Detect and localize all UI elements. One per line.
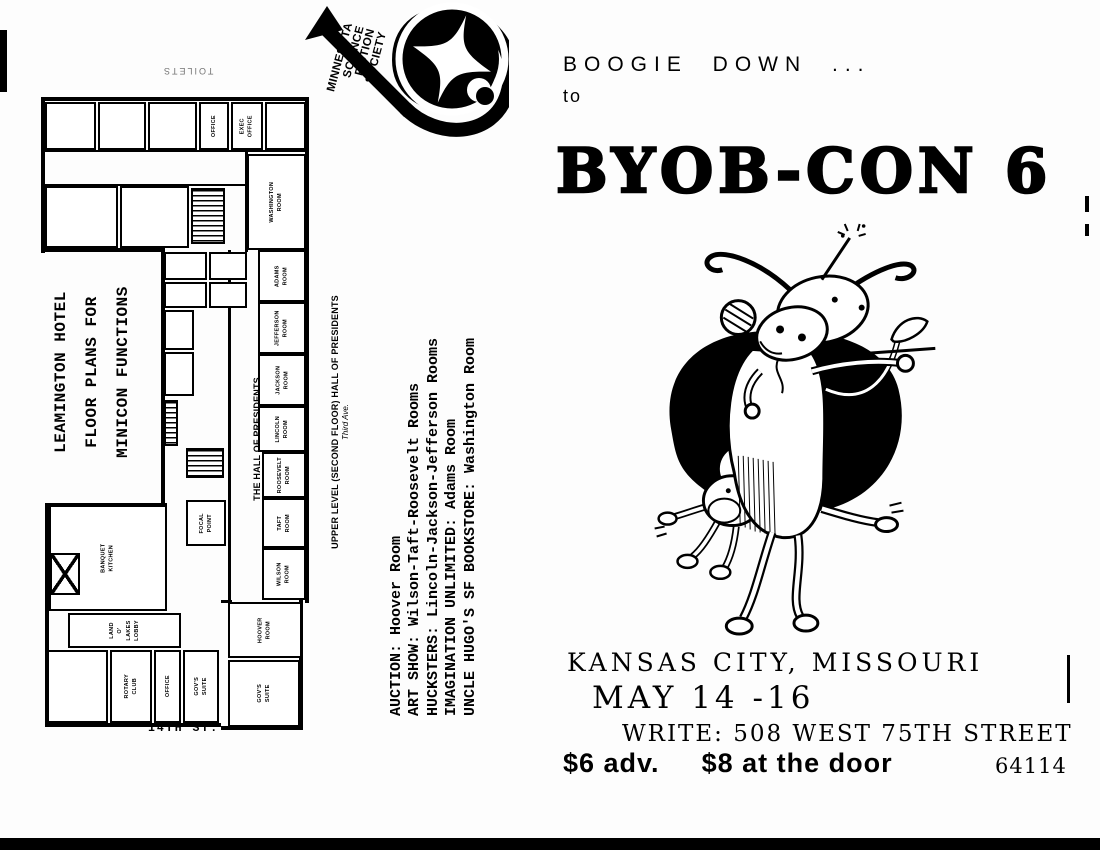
- room-office-2: OFFICE: [154, 650, 181, 723]
- flyer-page: MINNESOTA SCIENCE FICTION SOCIETY BOOGIE…: [0, 0, 1100, 850]
- room-govs-suite-west-label: GOV'S SUITE: [193, 677, 210, 696]
- room-govs-suite-east-label: GOV'S SUITE: [256, 684, 273, 703]
- room-exec-office: EXEC OFFICE: [231, 102, 263, 150]
- room-jefferson-label: JEFFERSON ROOM: [274, 310, 291, 346]
- hotel-headline-line: MINICON FUNCTIONS: [108, 282, 139, 462]
- hotel-headline-line: LEAMINGTON HOTEL: [46, 282, 77, 462]
- room-h: [164, 252, 207, 280]
- room-govs-suite-west: GOV'S SUITE: [183, 650, 219, 723]
- zip-code: 64114: [995, 754, 1067, 778]
- room-roosevelt-label: ROOSEVELT ROOM: [276, 457, 293, 493]
- room-office: OFFICE: [199, 102, 229, 150]
- room-f: [120, 186, 189, 248]
- room-e: [45, 186, 118, 248]
- elevator-2: [164, 400, 178, 446]
- room-govs-suite-east: GOV'S SUITE: [228, 660, 300, 727]
- room-rotary-club: ROTARY CLUB: [110, 650, 152, 723]
- room-m: [164, 352, 194, 396]
- write-address-line: WRITE: 508 WEST 75TH STREET: [622, 721, 1073, 747]
- plan-wall: [41, 248, 165, 252]
- boogie-down-line: BOOGIE DOWN ...: [563, 53, 871, 77]
- function-list-item: ART SHOW: Wilson-Taft-Roosevelt Rooms: [406, 306, 424, 716]
- room-hoover-label: HOOVER ROOM: [257, 617, 274, 643]
- room-rotary-club-label: ROTARY CLUB: [123, 674, 140, 698]
- scan-artifact: [0, 838, 1100, 850]
- plan-caption-sub: Third Ave.: [341, 286, 350, 558]
- room-c: [148, 102, 197, 150]
- plan-caption-main: UPPER LEVEL (SECOND FLOOR) HALL OF PRESI…: [330, 286, 340, 558]
- elevator: [50, 553, 80, 595]
- room-hoover: HOOVER ROOM: [228, 602, 302, 658]
- room-washington-label: WASHINGTON ROOM: [268, 182, 285, 223]
- room-wilson-label: WILSON ROOM: [276, 562, 293, 586]
- scan-artifact: [0, 30, 7, 92]
- toilets-label: TOILETS: [162, 66, 213, 76]
- room-jackson-label: JACKSON ROOM: [274, 366, 291, 395]
- room-washington: WASHINGTON ROOM: [247, 154, 306, 250]
- scan-artifact: [1085, 196, 1089, 212]
- room-l: [164, 310, 194, 350]
- plan-caption: UPPER LEVEL (SECOND FLOOR) HALL OF PRESI…: [330, 286, 350, 558]
- room-g: [47, 650, 108, 723]
- price-line: $6 adv. $8 at the door: [563, 748, 893, 779]
- hotel-headline-line: FLOOR PLANS FOR: [77, 282, 108, 462]
- function-list-item: AUCTION: Hoover Room: [388, 306, 406, 716]
- room-lincoln-label: LINCOLN ROOM: [274, 416, 291, 443]
- function-list-item: UNCLE HUGO'S SF BOOKSTORE: Washington Ro…: [462, 306, 480, 716]
- room-land-o-lakes-lobby-label: LAND O' LAKES LOBBY: [108, 620, 141, 641]
- hall-of-presidents-label: THE HALL OF PRESIDENTS: [252, 376, 262, 502]
- street-label: 14TH ST.: [148, 722, 219, 735]
- room-taft: TAFT ROOM: [262, 498, 306, 548]
- location-line: KANSAS CITY, MISSOURI: [567, 648, 983, 677]
- room-roosevelt: ROOSEVELT ROOM: [262, 452, 306, 498]
- room-exec-office-label: EXEC OFFICE: [239, 115, 256, 137]
- room-land-o-lakes-lobby: LAND O' LAKES LOBBY: [68, 613, 181, 648]
- dancing-cows-illustration: [640, 222, 940, 640]
- price-advance: $6 adv.: [563, 748, 660, 779]
- convention-title: BYOB-CON 6: [556, 136, 1052, 207]
- scan-artifact: [1085, 224, 1089, 236]
- room-adams: ADAMS ROOM: [258, 250, 306, 302]
- room-jefferson: JEFFERSON ROOM: [258, 302, 306, 354]
- stairs-south: [186, 448, 224, 478]
- room-adams-label: ADAMS ROOM: [274, 265, 291, 287]
- scan-artifact: [1067, 655, 1070, 703]
- room-focal-point: FOCAL POINT: [186, 500, 226, 546]
- function-list-item: HUCKSTERS: Lincoln-Jackson-Jefferson Roo…: [425, 306, 443, 716]
- room-j: [164, 282, 207, 308]
- room-a: [45, 102, 96, 150]
- function-list: AUCTION: Hoover Room ART SHOW: Wilson-Ta…: [388, 306, 480, 716]
- plan-wall: [41, 97, 309, 101]
- room-office-label: OFFICE: [210, 115, 218, 137]
- room-office-2-label: OFFICE: [163, 676, 171, 698]
- plan-wall: [44, 150, 306, 152]
- to-line: to: [563, 86, 582, 107]
- hotel-headline: LEAMINGTON HOTEL FLOOR PLANS FOR MINICON…: [46, 282, 139, 462]
- function-list-item: IMAGINATION UNLIMITED: Adams Room: [443, 306, 461, 716]
- room-jackson: JACKSON ROOM: [258, 354, 306, 406]
- price-door: $8 at the door: [702, 748, 893, 779]
- room-lincoln: LINCOLN ROOM: [258, 406, 306, 452]
- room-b: [98, 102, 146, 150]
- dates-line: MAY 14 -16: [592, 680, 814, 716]
- room-banquet-kitchen-label: BANQUET KITCHEN: [100, 543, 117, 572]
- room-focal-point-label: FOCAL POINT: [198, 513, 215, 533]
- room-wilson: WILSON ROOM: [262, 548, 306, 600]
- room-k: [209, 282, 247, 308]
- room-taft-label: TAFT ROOM: [276, 514, 293, 532]
- room-i: [209, 252, 247, 280]
- room-d: [265, 102, 306, 150]
- stairs-north: [191, 188, 225, 244]
